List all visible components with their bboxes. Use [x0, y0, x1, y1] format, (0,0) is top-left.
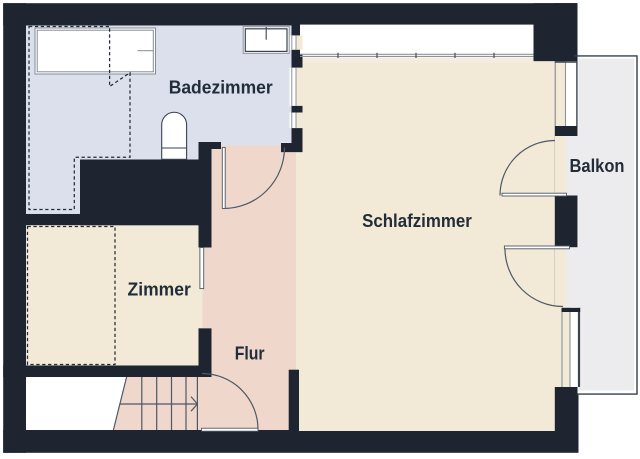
svg-text:Balkon: Balkon — [570, 155, 625, 176]
svg-text:Badezimmer: Badezimmer — [169, 76, 273, 97]
svg-text:Flur: Flur — [235, 343, 265, 364]
svg-text:Zimmer: Zimmer — [128, 279, 191, 300]
svg-text:Schlafzimmer: Schlafzimmer — [362, 210, 472, 231]
